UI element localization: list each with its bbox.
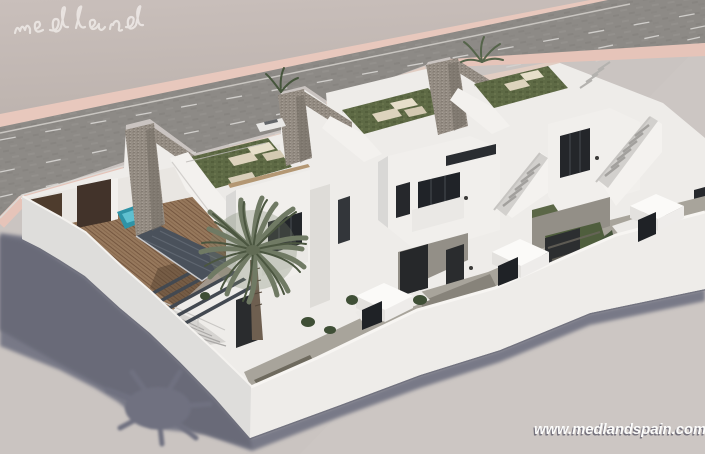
svg-text:www.medlandspain.com: www.medlandspain.com [534,422,705,438]
